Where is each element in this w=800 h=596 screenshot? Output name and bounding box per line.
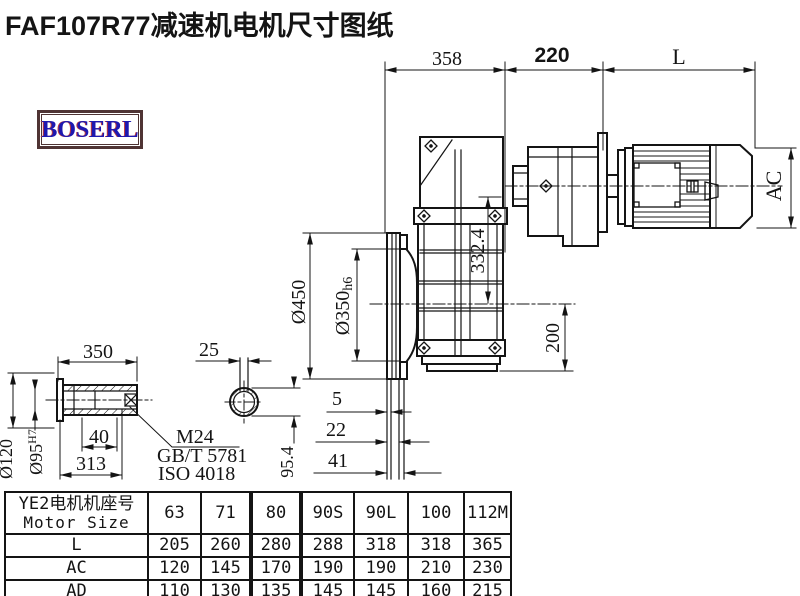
dim-358-label: 358 [432,48,462,70]
table-cell: 288 [301,534,354,557]
dim-332-label: 332.4 [467,229,489,274]
table-header-cell: 90L [354,492,408,534]
dim-bore-label: Ø95H7 [25,429,46,475]
table-header-row: YE2电机机座号 Motor Size 63 71 80 90S 90L 100… [5,492,511,534]
dim-shaft-od-label: Ø120 [0,439,16,479]
dim-40-label: 40 [89,426,109,448]
table-header-cell: 100 [408,492,464,534]
dim-95-4-label: 95.4 [277,446,297,478]
table-cell: 190 [301,557,354,580]
motor-size-table: YE2电机机座号 Motor Size 63 71 80 90S 90L 100… [4,491,512,596]
dim-25-label: 25 [199,339,219,361]
table-cell: 318 [408,534,464,557]
table-cell: 210 [408,557,464,580]
table-cell: 205 [148,534,201,557]
table-cell: 130 [201,580,251,596]
table-header-cell: 112M [464,492,511,534]
header-en: Motor Size [6,514,147,532]
table-cell: 145 [201,557,251,580]
table-cell: 135 [251,580,301,596]
motor-stator-window [634,163,718,207]
table-cell: 120 [148,557,201,580]
table-cell: 145 [301,580,354,596]
row-label: AC [5,557,148,580]
table-row-AD: AD 110 130 135 145 145 160 215 [5,580,511,596]
table-header-cell: 80 [251,492,301,534]
header-cn: YE2电机机座号 [6,495,147,514]
table-cell: 260 [201,534,251,557]
table-cell: 160 [408,580,464,596]
table-cell: 170 [251,557,301,580]
table-cell: 280 [251,534,301,557]
table-cell: 215 [464,580,511,596]
page-title: FAF107R77减速机电机尺寸图纸 [5,4,394,43]
dim-350-label: 350 [83,341,113,363]
dim-flange-od-label: Ø450 [288,280,310,324]
dim-5-label: 5 [332,388,342,410]
table-cell: 318 [354,534,408,557]
dim-220-label: 220 [534,44,569,67]
table-header-motor-size: YE2电机机座号 Motor Size [5,492,148,534]
drawing-page: FAF107R77减速机电机尺寸图纸 BOSERL 358 220 L [0,0,800,596]
hollow-shaft-detail [46,379,152,421]
row-label: L [5,534,148,557]
dim-ac-label: AC [761,171,786,202]
table-header-cell: 90S [301,492,354,534]
table-cell: 145 [354,580,408,596]
table-cell: 110 [148,580,201,596]
dim-22-label: 22 [326,419,346,441]
logo-text: BOSERL [41,118,138,142]
row-label: AD [5,580,148,596]
table-cell: 365 [464,534,511,557]
table-row-L: L 205 260 280 288 318 318 365 [5,534,511,557]
table-row-AC: AC 120 145 170 190 190 210 230 [5,557,511,580]
standard-iso-label: ISO 4018 [158,463,235,485]
logo-inner-frame: BOSERL [41,114,139,145]
table-header-cell: 63 [148,492,201,534]
table-cell: 230 [464,557,511,580]
dim-313-label: 313 [76,453,106,475]
motor-adapter [513,147,598,246]
table-cell: 190 [354,557,408,580]
table-header-cell: 71 [201,492,251,534]
boserl-logo: BOSERL [37,110,143,149]
gearbox-details [418,140,503,356]
motor-adapter-lines [513,147,598,246]
dim-41-label: 41 [328,450,348,472]
dim-spigot-label: Ø350h6 [332,277,356,335]
dim-200-label: 200 [542,323,564,353]
dim-L-label: L [672,44,685,69]
